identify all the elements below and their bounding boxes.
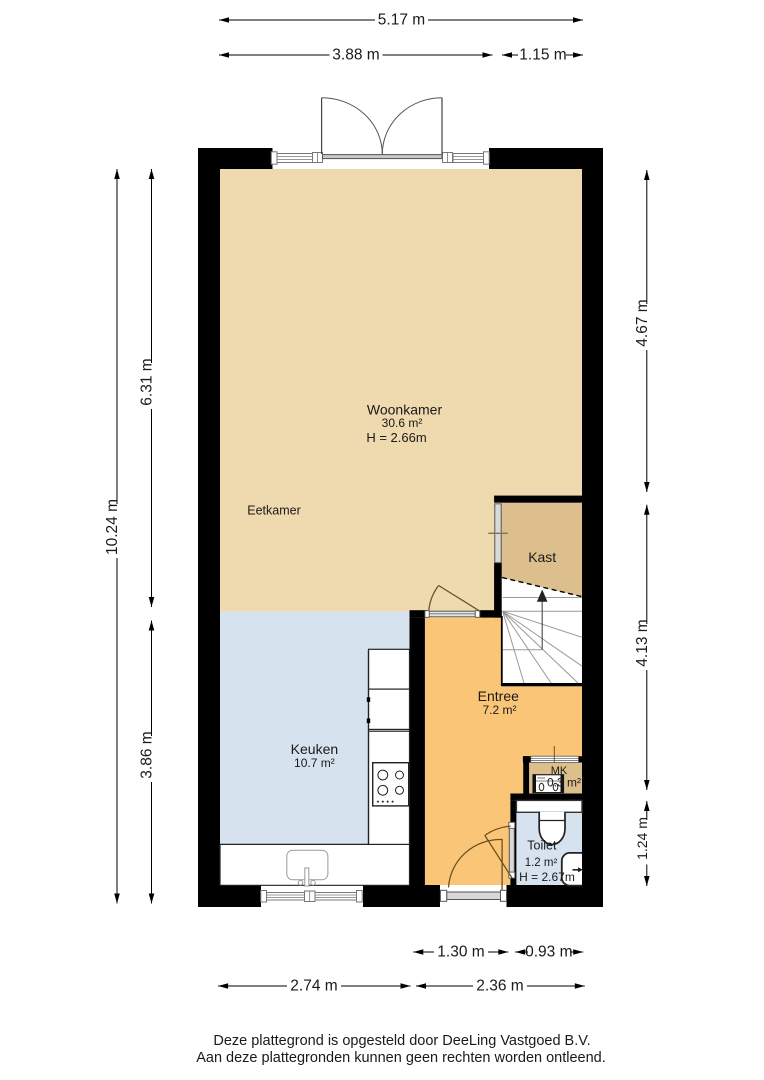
svg-text:4.13 m: 4.13 m	[634, 619, 651, 666]
svg-text:1.30 m: 1.30 m	[437, 944, 484, 961]
svg-text:1.2 m²: 1.2 m²	[525, 857, 558, 869]
svg-text:10.7 m²: 10.7 m²	[294, 756, 335, 770]
svg-text:1.24 m: 1.24 m	[634, 817, 650, 860]
svg-text:7.2 m²: 7.2 m²	[482, 703, 516, 717]
svg-text:3.88 m: 3.88 m	[332, 47, 379, 64]
svg-text:5.17 m: 5.17 m	[378, 12, 425, 29]
svg-text:30.6 m²: 30.6 m²	[382, 416, 423, 430]
svg-text:Entree: Entree	[478, 688, 519, 704]
svg-text:Keuken: Keuken	[291, 741, 338, 757]
svg-text:2.36 m: 2.36 m	[476, 978, 523, 995]
svg-text:0.3 m²: 0.3 m²	[547, 776, 581, 790]
svg-text:Aan deze plattegronden kunnen: Aan deze plattegronden kunnen geen recht…	[196, 1050, 606, 1066]
svg-text:H = 2.66m: H = 2.66m	[366, 430, 426, 445]
svg-text:Toilet: Toilet	[527, 839, 557, 853]
svg-text:1.15 m: 1.15 m	[519, 47, 566, 64]
svg-text:0.93 m: 0.93 m	[525, 944, 572, 961]
svg-text:Eetkamer: Eetkamer	[247, 503, 301, 517]
svg-text:4.67 m: 4.67 m	[634, 299, 651, 346]
svg-text:6.31 m: 6.31 m	[139, 358, 156, 405]
svg-text:2.74 m: 2.74 m	[290, 978, 337, 995]
svg-text:Kast: Kast	[528, 549, 556, 565]
svg-text:3.86 m: 3.86 m	[139, 731, 156, 778]
svg-text:H = 2.67m: H = 2.67m	[519, 870, 575, 884]
svg-text:Deze plattegrond is opgesteld: Deze plattegrond is opgesteld door DeeLi…	[213, 1033, 590, 1049]
svg-text:10.24 m: 10.24 m	[104, 499, 121, 555]
